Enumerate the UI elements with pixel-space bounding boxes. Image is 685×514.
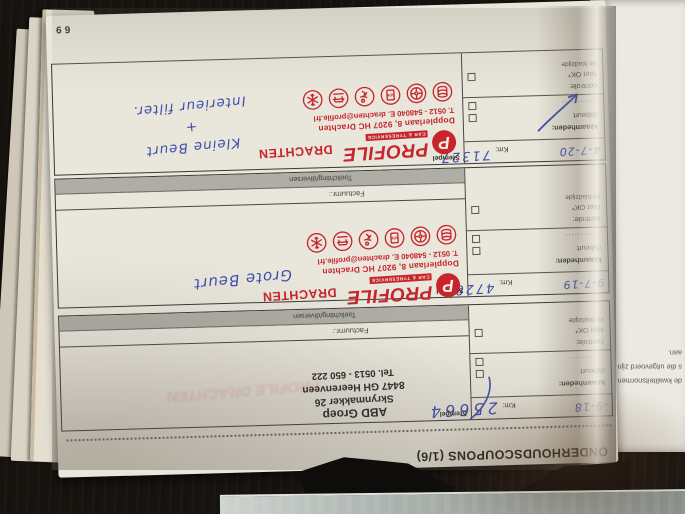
date-km-row: 4-7-20 Km: 71327 [464, 137, 605, 163]
onderhoudsbeurt-label: dsbeurt [580, 366, 605, 376]
dotted-field: ............ [561, 99, 598, 109]
niveaucontrole-label: controle: [572, 214, 600, 224]
checkbox [475, 358, 483, 366]
checkbox [472, 247, 480, 255]
bladzijde-note: ke bladzijde [467, 60, 596, 71]
stempel-label: Stempel [440, 409, 467, 417]
service-coupon-2018: -9-18 Km: 25664 kzaamheden: dsbeurt ....… [58, 300, 613, 431]
date-km-row: -9-18 Km: 25664 [471, 393, 612, 419]
km-label: Km: [502, 401, 516, 410]
dotted-field: ............ [565, 231, 602, 241]
bladzijde-note: ke bladzijde [474, 315, 603, 326]
tyre-stack-icon [435, 224, 457, 246]
car-lift-icon [331, 230, 353, 252]
wheel-icon [409, 225, 431, 247]
stamp-column: Stempel P PROFILE CAR & TYRESERVICE DRAC… [55, 168, 467, 307]
checkbox [472, 235, 480, 243]
svg-text:APK: APK [386, 92, 395, 98]
werkzaamheden-label: kzaamheden: [552, 123, 598, 133]
checkbox [475, 329, 483, 337]
onderhoudsbeurt-label: dsbeurt [577, 243, 602, 253]
snowflake-icon [306, 232, 328, 254]
photo-of-maintenance-booklet: de kwaliteitsnormen als de c s die uitge… [0, 0, 685, 514]
stamp-city: DRACHTEN [262, 286, 337, 305]
checkbox [469, 114, 477, 122]
abd-groep-stamp: ABD Groep Skrynmakker 26 8447 GH Heerenv… [250, 362, 458, 426]
checkbox [471, 206, 479, 214]
page-title: ONDERHOUDSCOUPONS (1/6) [416, 444, 608, 463]
handwritten-date: 9-7-19 [562, 276, 605, 292]
page-number: 69 [53, 23, 70, 34]
coupon-fields-column: 4-7-20 Km: 71327 kzaamheden: dsbeurt ...… [461, 49, 605, 163]
niet-ok-label: Niet OK* [568, 70, 597, 80]
niveaucontrole-label: controle: [569, 82, 597, 92]
werkzaamheden-label: kzaamheden: [559, 378, 605, 388]
runner-icon [357, 228, 379, 250]
coupon-fields-column: -9-18 Km: 25664 kzaamheden: dsbeurt ....… [468, 301, 612, 419]
niet-ok-label: Niet OK* [575, 325, 604, 335]
wheel-icon [405, 82, 427, 104]
field-separator [467, 226, 607, 231]
km-label: Km: [495, 145, 509, 154]
profile-drachten-stamp: P PROFILE CAR & TYRESERVICE DRACHTEN Dop… [225, 81, 457, 170]
service-coupon-2019: 9-7-19 Km: 47288 kzaamheden: dsbeurt ...… [54, 163, 609, 308]
coupon-fields-column: 9-7-19 Km: 47288 kzaamheden: dsbeurt ...… [464, 164, 609, 296]
werkzaamheden-label: kzaamheden: [555, 255, 601, 265]
table-edge-strip [220, 489, 685, 514]
apk-icon: APK [379, 84, 401, 106]
handwritten-date: -9-18 [573, 399, 608, 414]
cover-gap [520, 462, 630, 512]
stamp-column: Stempel P PROFILE CAR & TYRESERVICE DRAC… [52, 53, 464, 174]
car-lift-icon [327, 87, 349, 109]
stamp-brand: PROFILE [346, 281, 433, 307]
niet-ok-label: Niet OK* [572, 203, 601, 213]
dotted-field: ............ [568, 354, 605, 364]
handwritten-date: 4-7-20 [558, 143, 601, 159]
niveaucontrole-label: controle: [576, 337, 604, 347]
snowflake-icon [302, 89, 324, 111]
handwritten-km: 25664 [426, 398, 498, 421]
tyre-stack-icon [431, 81, 453, 103]
km-label: Km: [499, 278, 513, 287]
checkbox [476, 370, 484, 378]
checkbox [468, 102, 476, 110]
profile-logo-icon: P [431, 130, 456, 155]
field-separator [470, 349, 610, 354]
stamp-brand: PROFILE [342, 138, 429, 164]
onderhoudsbeurt-label: dsbeurt [573, 111, 598, 121]
bladzijde-note: ke bladzijde [471, 193, 600, 204]
svg-text:APK: APK [390, 235, 399, 241]
runner-icon [353, 86, 375, 108]
apk-icon: APK [383, 227, 405, 249]
date-km-row: 9-7-19 Km: 47288 [468, 270, 609, 296]
service-coupon-2020: 4-7-20 Km: 71327 kzaamheden: dsbeurt ...… [51, 48, 606, 175]
handwritten-note-kleine-beurt: Kleine Beurt + Interieur filter. [132, 91, 251, 163]
field-separator [463, 93, 603, 98]
profile-logo-icon: P [435, 273, 460, 298]
checkbox [467, 73, 475, 81]
stamp-city: DRACHTEN [258, 143, 333, 162]
stamp-column: Stempel PROFILE DRACHTEN ABD Groep Skryn… [59, 305, 471, 430]
coupon-page: ONDERHOUDSCOUPONS (1/6) -9-18 Km: 25664 … [46, 0, 619, 477]
